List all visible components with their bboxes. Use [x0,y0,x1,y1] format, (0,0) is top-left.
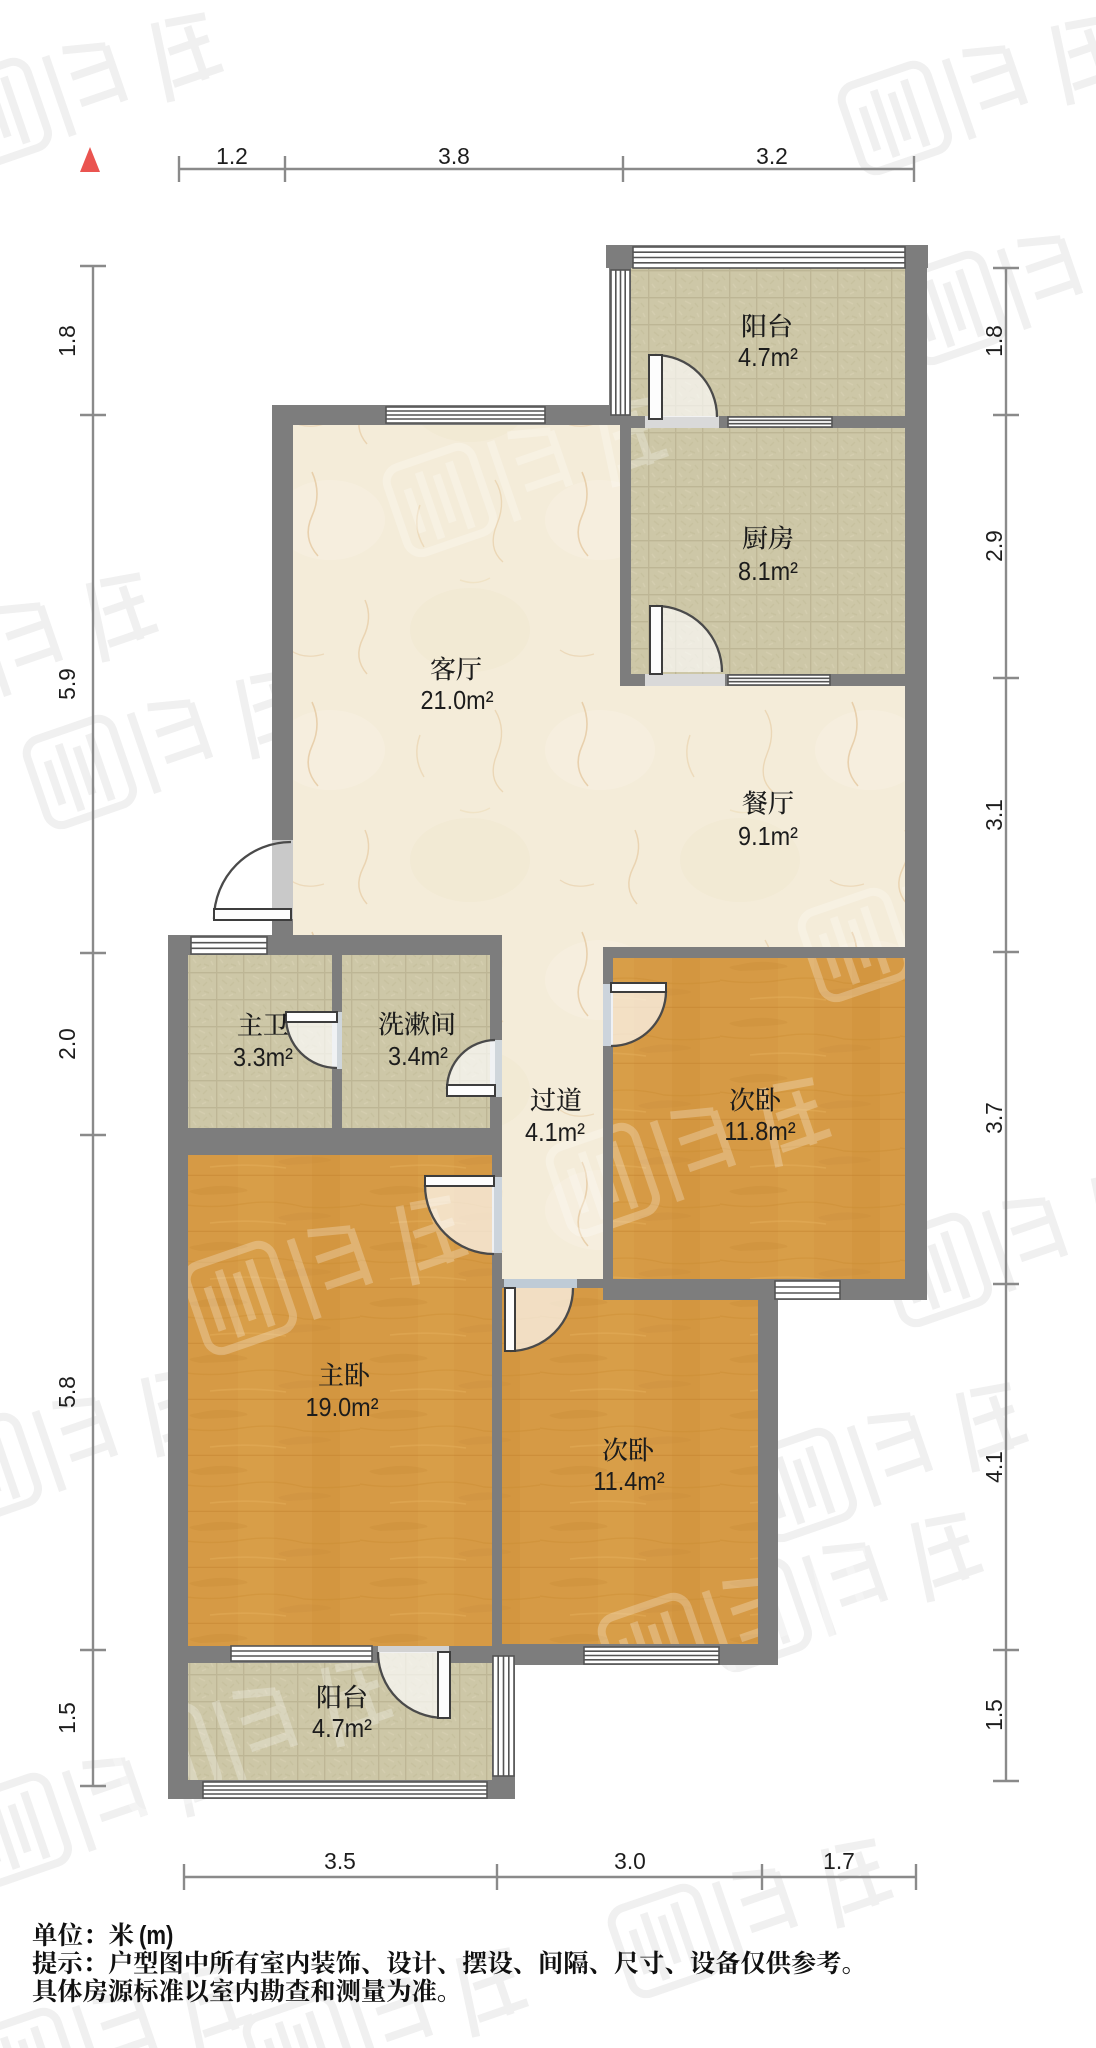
svg-text:3.4m²: 3.4m² [388,1043,448,1071]
svg-text:2.0: 2.0 [54,1028,80,1060]
svg-text:3.2: 3.2 [756,143,788,169]
svg-text:1.2: 1.2 [216,143,248,169]
svg-text:11.8m²: 11.8m² [724,1118,795,1146]
svg-text:11.4m²: 11.4m² [593,1468,664,1496]
svg-text:4.7m²: 4.7m² [312,1715,372,1743]
svg-text:1.5: 1.5 [54,1702,80,1734]
svg-text:3.8: 3.8 [438,143,470,169]
svg-text:8.1m²: 8.1m² [738,558,798,586]
svg-text:4.7m²: 4.7m² [738,344,798,372]
svg-text:21.0m²: 21.0m² [420,687,493,715]
svg-text:19.0m²: 19.0m² [305,1394,378,1422]
svg-text:4.1m²: 4.1m² [525,1119,585,1147]
svg-text:5.9: 5.9 [54,668,80,700]
svg-text:3.3m²: 3.3m² [233,1044,293,1072]
svg-text:3.1: 3.1 [981,799,1007,831]
svg-text:5.8: 5.8 [54,1376,80,1408]
svg-text:1.5: 1.5 [981,1699,1007,1731]
svg-text:1.8: 1.8 [54,325,80,357]
svg-text:3.7: 3.7 [981,1102,1007,1134]
svg-text:3.0: 3.0 [614,1848,646,1874]
svg-text:9.1m²: 9.1m² [738,823,798,851]
svg-text:1.7: 1.7 [823,1848,855,1874]
svg-text:4.1: 4.1 [981,1451,1007,1483]
svg-text:(m): (m) [139,1921,173,1950]
svg-text:1.8: 1.8 [981,325,1007,357]
svg-text:2.9: 2.9 [981,530,1007,562]
svg-text:3.5: 3.5 [324,1848,356,1874]
